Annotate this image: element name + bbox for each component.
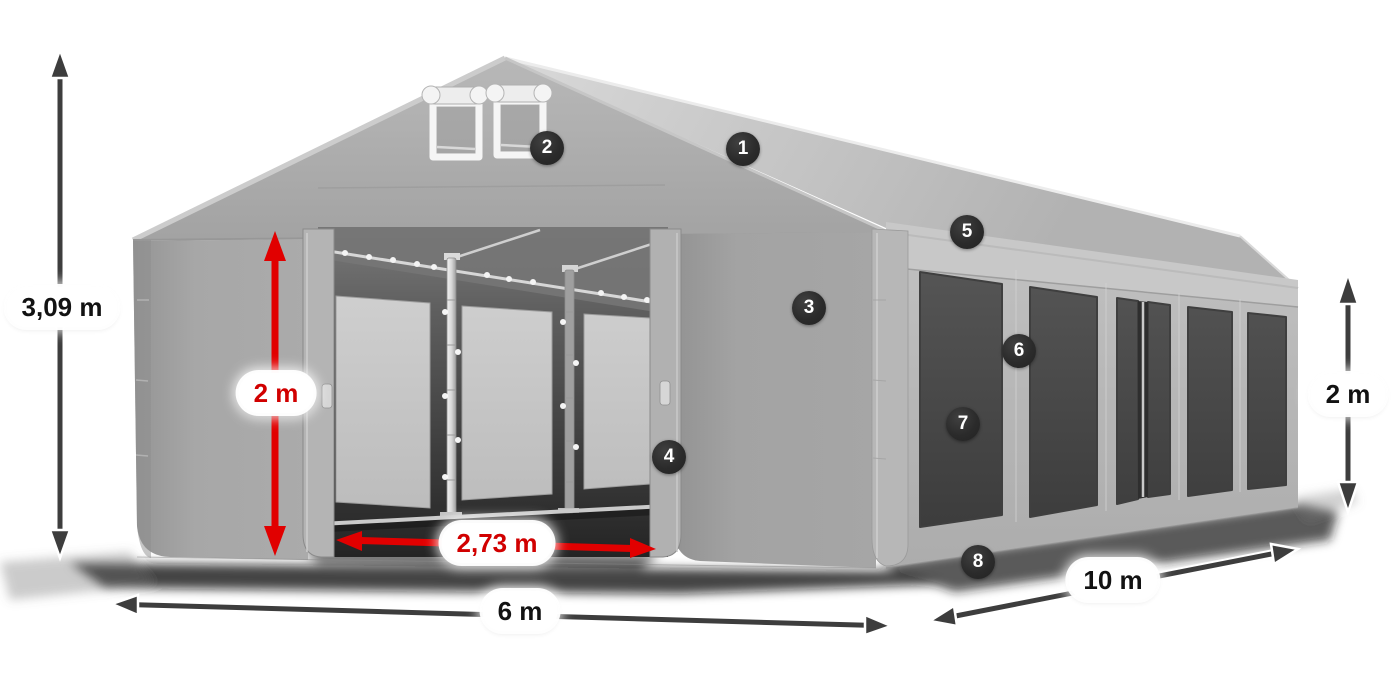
front-width-label: 6 m [483, 591, 558, 631]
marker-7[interactable]: 7 [946, 407, 980, 441]
front-left-corner-strip [133, 240, 151, 558]
side-window-4 [1188, 307, 1232, 496]
side-window-5 [1248, 313, 1286, 489]
marker-4[interactable]: 4 [652, 440, 686, 474]
door-strap-right [660, 381, 670, 405]
side-length-label: 10 m [1068, 560, 1157, 600]
side-window-1 [920, 272, 1002, 527]
front-corner-column [872, 229, 908, 566]
side-wall [886, 222, 1298, 568]
door-height-label: 2 m [239, 373, 314, 413]
door-width-label: 2,73 m [442, 523, 553, 563]
side-window-3a [1117, 298, 1138, 504]
side-window-3b [1148, 302, 1170, 497]
door-opening-interior [318, 227, 668, 557]
side-window-2 [1030, 287, 1097, 517]
marker-3[interactable]: 3 [792, 291, 826, 325]
total-height-label: 3,09 m [7, 287, 118, 327]
marker-1[interactable]: 1 [726, 132, 760, 166]
door-strap-left [322, 384, 332, 408]
marker-2[interactable]: 2 [530, 131, 564, 165]
marker-8[interactable]: 8 [961, 545, 995, 579]
side-wall-height-label: 2 m [1311, 374, 1386, 414]
interior-windows [336, 296, 650, 508]
tent-dimension-diagram: 3,09 m 2 m 2,73 m 6 m 10 m 2 m 1 2 3 4 5… [0, 0, 1400, 700]
marker-5[interactable]: 5 [950, 215, 984, 249]
tent-illustration [0, 0, 1400, 700]
marker-6[interactable]: 6 [1002, 334, 1036, 368]
front-wall-right [672, 232, 876, 568]
